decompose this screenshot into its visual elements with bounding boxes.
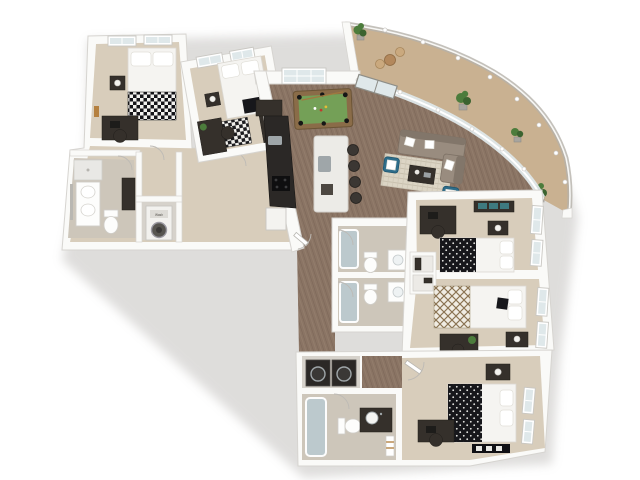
hall-floor	[362, 356, 402, 388]
bathtub	[306, 398, 326, 456]
toilet	[338, 418, 361, 434]
bathroom-2	[338, 226, 408, 273]
lamp	[495, 369, 501, 375]
desk-chair	[430, 434, 443, 447]
pillow	[153, 52, 173, 66]
bar-stool	[351, 193, 362, 204]
bathtub	[340, 230, 358, 268]
laptop	[110, 121, 120, 128]
bathroom-wall	[70, 150, 140, 156]
bathroom-block	[332, 218, 414, 332]
coffee-table	[408, 165, 436, 184]
pillow	[508, 306, 522, 320]
bathroom-1	[68, 150, 142, 242]
bar-stool	[348, 145, 359, 156]
desk-chair	[432, 226, 445, 239]
bathroom-3	[338, 278, 408, 326]
bar-stool	[349, 161, 360, 172]
range	[272, 176, 290, 191]
lamp	[115, 80, 121, 86]
great-room-window	[282, 68, 326, 84]
pillow	[500, 390, 513, 406]
table-book	[423, 172, 431, 178]
sink	[393, 287, 403, 297]
throw-pillow	[496, 297, 508, 309]
floor-plan-render: Wash	[0, 0, 640, 480]
diamond-blanket	[434, 286, 470, 328]
pillow	[131, 52, 151, 66]
lamp	[495, 225, 501, 231]
bathtub	[340, 282, 358, 322]
desk-plant	[468, 336, 476, 344]
media-console	[474, 201, 514, 212]
desk-chair	[114, 130, 127, 143]
window	[108, 36, 136, 46]
sink	[393, 255, 403, 265]
laptop	[428, 212, 438, 219]
wall-art	[94, 106, 99, 117]
accent-chair	[383, 156, 400, 173]
island-sink	[318, 156, 331, 172]
bistro-table	[385, 55, 396, 66]
laundry-wall	[136, 196, 182, 202]
refrigerator	[266, 208, 286, 230]
throw-pillow	[425, 140, 434, 148]
pool-felt	[298, 94, 347, 124]
bathroom-4	[302, 394, 396, 460]
bistro-chair	[376, 60, 385, 69]
shower-drain	[87, 169, 90, 172]
sink	[81, 204, 95, 216]
kitchen-sink	[268, 136, 282, 145]
pillow	[500, 256, 513, 269]
window	[144, 35, 172, 45]
linen-shelf	[122, 178, 135, 210]
floor-plan-canvas: Wash	[0, 0, 640, 480]
cutting-board	[321, 184, 333, 195]
sink	[366, 412, 378, 424]
mirror	[70, 184, 73, 220]
sink	[81, 186, 95, 198]
toilet	[364, 252, 377, 273]
pool-table	[293, 89, 353, 130]
pantry-cabinet	[256, 100, 282, 116]
toilet	[104, 210, 118, 234]
closet	[410, 252, 436, 294]
bar-stool	[350, 177, 361, 188]
towel-shelf	[386, 436, 394, 456]
polka-dot-duvet	[440, 238, 476, 272]
pillow	[500, 410, 513, 426]
washer-label: Wash	[155, 213, 163, 217]
laptop	[426, 426, 436, 433]
bistro-chair	[396, 48, 405, 57]
pillow	[508, 290, 522, 304]
storage-bench	[472, 444, 510, 453]
stacked-washer-dryer: Wash	[146, 206, 172, 240]
toilet	[364, 284, 377, 305]
bedroom-5	[402, 356, 545, 460]
lamp	[514, 336, 520, 342]
bottom-wing	[296, 350, 552, 466]
right-wing	[402, 190, 554, 356]
pillow	[500, 241, 513, 254]
vanity	[360, 408, 392, 432]
pillow	[221, 63, 240, 79]
